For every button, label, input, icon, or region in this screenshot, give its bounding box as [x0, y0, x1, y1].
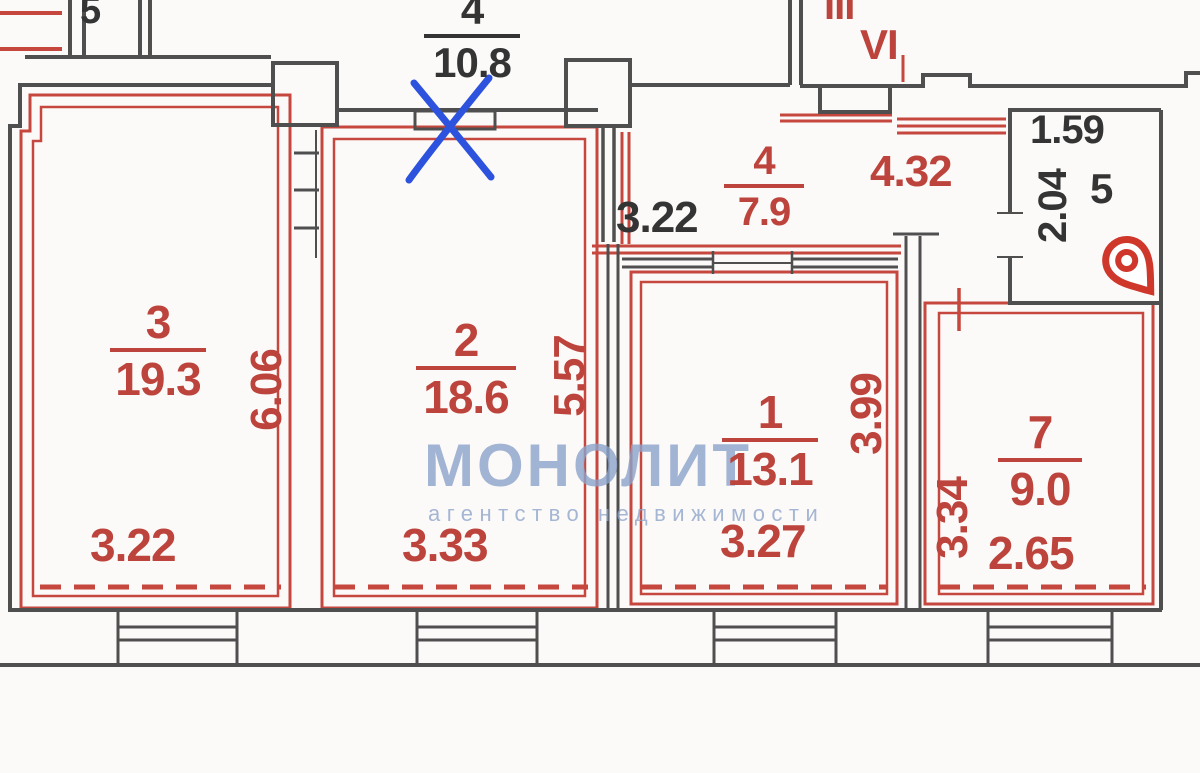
- corridor-fraction: 4 7.9: [724, 140, 804, 233]
- room1-number: 1: [722, 388, 818, 442]
- room3-number: 3: [110, 298, 206, 352]
- room2-fraction: 2 18.6: [416, 316, 516, 422]
- room7-area: 9.0: [1010, 462, 1071, 513]
- location-pin-icon: [1097, 231, 1167, 304]
- stair-label-vi: VI: [860, 24, 898, 66]
- stair-label-iii: III: [824, 0, 854, 26]
- room7-width-label: 2.65: [988, 530, 1074, 576]
- room2-width-label: 3.33: [402, 522, 488, 568]
- room7-fraction: 7 9.0: [998, 408, 1082, 514]
- watermark-title: МОНОЛИТ: [424, 436, 752, 496]
- room2-area: 18.6: [423, 370, 509, 421]
- room5-depth-label: 2.04: [1033, 141, 1073, 271]
- room3-depth-label: 6.06: [245, 325, 289, 455]
- room1-area: 13.1: [727, 442, 813, 493]
- room5-number: 5: [1090, 168, 1112, 210]
- room1-width-label: 3.27: [720, 518, 806, 564]
- top-room4-fraction: 4 10.8: [424, 0, 520, 85]
- top-left-room-number: 5: [80, 0, 100, 30]
- room2-number: 2: [416, 316, 516, 370]
- room3-area: 19.3: [115, 352, 201, 403]
- room7-depth-label: 3.34: [931, 453, 975, 583]
- room3-width-label: 3.22: [90, 522, 176, 568]
- room1-fraction: 1 13.1: [722, 388, 818, 494]
- top-room4-area: 10.8: [433, 38, 511, 85]
- top-room4-number: 4: [424, 0, 520, 38]
- room1-depth-label: 3.99: [845, 349, 889, 479]
- room2-depth-label: 5.57: [548, 311, 592, 441]
- corridor-width-left-label: 3.22: [616, 196, 698, 240]
- floorplan-canvas: МОНОЛИТ агентство недвижимости 5 4 10.8 …: [0, 0, 1200, 773]
- room3-fraction: 3 19.3: [110, 298, 206, 404]
- corridor-width-right-label: 4.32: [870, 150, 952, 194]
- room7-number: 7: [998, 408, 1082, 462]
- corridor-number: 4: [724, 140, 804, 188]
- corridor-area: 7.9: [738, 188, 791, 233]
